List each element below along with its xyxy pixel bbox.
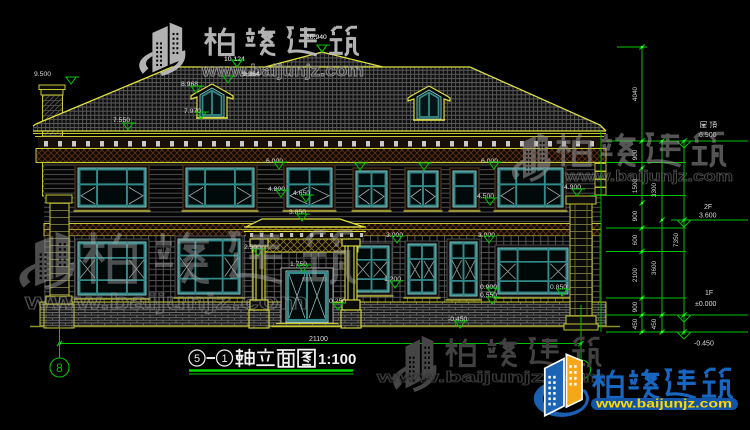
svg-text:1F: 1F [705, 290, 713, 297]
svg-text:900: 900 [632, 210, 639, 221]
svg-text:8: 8 [56, 361, 63, 375]
svg-text:900: 900 [632, 301, 639, 312]
svg-text:-0.450: -0.450 [694, 341, 714, 348]
svg-text:3600: 3600 [651, 260, 658, 275]
svg-text:0.850: 0.850 [550, 284, 567, 291]
svg-text:600: 600 [632, 234, 639, 245]
svg-text:21100: 21100 [309, 336, 328, 343]
svg-text:450: 450 [632, 318, 639, 329]
svg-text:www.baijunjz.com: www.baijunjz.com [24, 289, 308, 314]
svg-text:5: 5 [194, 353, 200, 365]
svg-text:www.baijunjz.com: www.baijunjz.com [595, 399, 732, 411]
svg-text:2F: 2F [704, 204, 712, 211]
svg-text:1.200: 1.200 [384, 276, 401, 283]
svg-text:7350: 7350 [673, 232, 680, 247]
svg-text:1:100: 1:100 [318, 351, 356, 368]
svg-text:10.940: 10.940 [306, 34, 327, 41]
svg-text:0.250: 0.250 [329, 298, 346, 305]
svg-text:3.600: 3.600 [699, 213, 717, 220]
svg-text:4040: 4040 [632, 86, 639, 101]
svg-text:0.550: 0.550 [480, 292, 497, 299]
svg-text:www.baijunjz.com: www.baijunjz.com [564, 168, 733, 185]
svg-text:±0.000: ±0.000 [695, 301, 716, 308]
svg-text:9.500: 9.500 [34, 71, 51, 78]
svg-text:1: 1 [221, 353, 227, 365]
svg-text:www.baijunjz.com: www.baijunjz.com [201, 61, 364, 80]
svg-text:450: 450 [651, 318, 658, 329]
svg-text:2100: 2100 [632, 267, 639, 282]
svg-text:9.364: 9.364 [243, 71, 260, 78]
svg-text:8.968: 8.968 [181, 81, 198, 88]
